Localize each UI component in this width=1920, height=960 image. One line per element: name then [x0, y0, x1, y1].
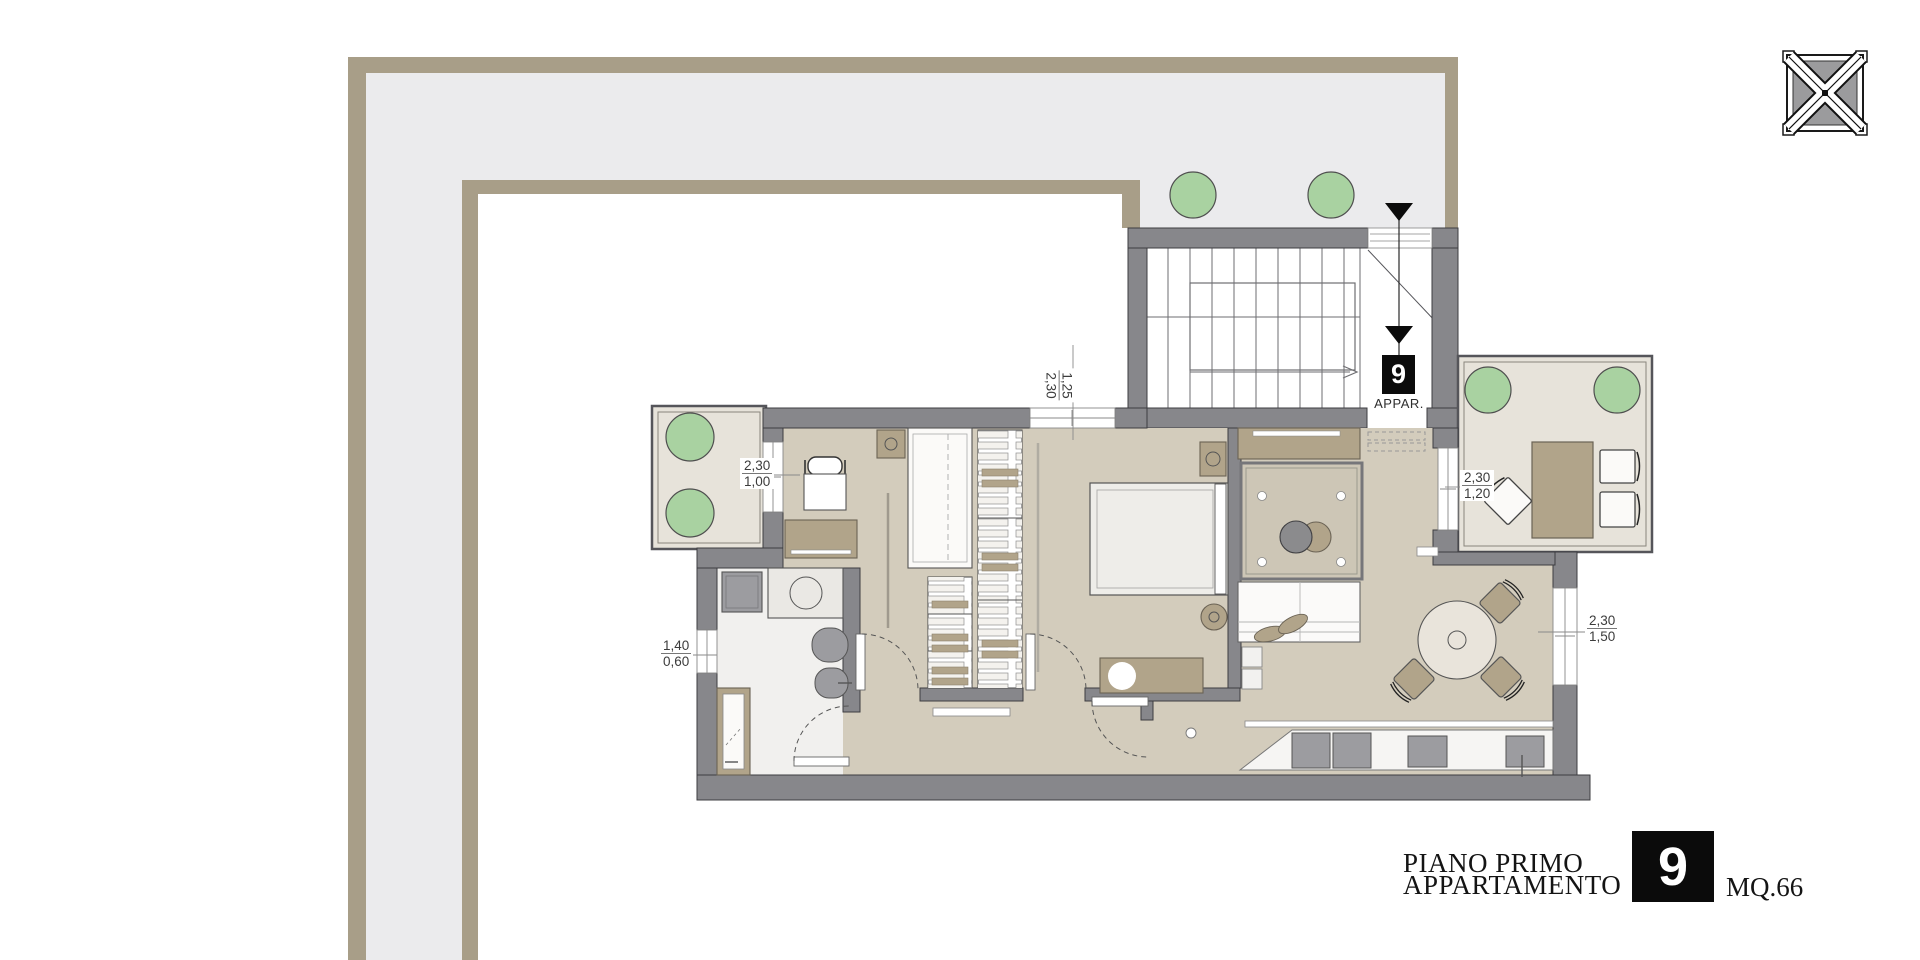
plant-circle-icon	[1308, 172, 1354, 218]
desk	[804, 474, 846, 510]
desk-chair	[805, 457, 845, 475]
dimension-label-balcony-window: 2,30 1,00	[740, 458, 774, 489]
toilet	[812, 628, 848, 662]
nightstand	[877, 430, 905, 458]
title-block: PIANO PRIMO APPARTAMENTO 9 MQ.66	[1395, 828, 1815, 918]
kitchen-appliance	[1333, 733, 1371, 768]
washing-machine	[722, 572, 762, 612]
dimension-label-bath-window: 1,40 0,60	[659, 638, 693, 669]
sink-counter	[768, 568, 843, 618]
stair-entrance-door	[1368, 228, 1432, 248]
floor-plan-page: 2,30 1,00 1,40 0,60 1,25 2,30 2,30 1,20 …	[0, 0, 1920, 960]
plant-circle-icon	[666, 413, 714, 461]
wall-vent	[1417, 547, 1438, 556]
living-window	[1553, 588, 1577, 685]
floor-plan-drawing	[0, 0, 1920, 960]
dimension-value-bottom: 1,20	[1462, 486, 1492, 501]
plant-circle-icon	[1170, 172, 1216, 218]
dimension-value-bottom: 1,00	[742, 474, 772, 489]
stair-unit-number-badge: 9	[1382, 355, 1415, 394]
dimension-value-top: 2,30	[1462, 470, 1492, 486]
dining-table	[1418, 601, 1496, 679]
stair-unit-caption: APPAR.	[1363, 396, 1435, 411]
dimension-value-bottom: 2,30	[1044, 370, 1059, 400]
terrace-chair	[1600, 492, 1640, 527]
floor-dot	[1186, 728, 1196, 738]
plant-circle-icon	[1465, 367, 1511, 413]
dimension-value-top: 2,30	[1587, 613, 1617, 629]
kitchen-sink	[1506, 736, 1544, 767]
dimension-value-top: 1,25	[1059, 370, 1075, 400]
double-bed	[1090, 483, 1228, 595]
bench	[1100, 658, 1203, 693]
terrace-window	[1438, 448, 1458, 530]
terrace-chair	[1600, 450, 1640, 483]
terrace-right	[1458, 356, 1652, 552]
dimension-value-bottom: 0,60	[661, 654, 691, 669]
hall-window	[1030, 408, 1115, 428]
hall-shelf	[933, 708, 1010, 716]
plant-circle-icon	[1594, 367, 1640, 413]
side-table	[1242, 647, 1262, 667]
terrace-table	[1532, 442, 1593, 538]
dimension-value-bottom: 1,50	[1587, 629, 1617, 644]
bedroom-partition-wall	[1228, 428, 1241, 688]
dimension-label-living-window: 2,30 1,50	[1585, 613, 1619, 644]
round-nightstand	[1201, 604, 1227, 630]
area-rug	[1241, 463, 1362, 579]
stairwell	[1115, 203, 1460, 448]
apartment-title: APPARTAMENTO	[1403, 874, 1621, 896]
sofa	[1238, 582, 1360, 645]
nightstand	[1200, 442, 1226, 476]
dimension-value-top: 1,40	[661, 638, 691, 654]
unit-number-badge: 9	[1632, 831, 1714, 902]
bath-window	[697, 630, 717, 673]
area-label: MQ.66	[1726, 872, 1803, 903]
side-table	[1242, 669, 1262, 689]
single-bed	[908, 428, 972, 568]
truss-logo	[1782, 50, 1872, 140]
sideboard	[1238, 428, 1360, 459]
dimension-value-top: 2,30	[742, 458, 772, 474]
plant-circle-icon	[666, 489, 714, 537]
dimension-label-hall-window: 1,25 2,30	[1044, 368, 1075, 402]
shower	[717, 688, 750, 775]
kitchen-appliance	[1408, 736, 1447, 767]
dimension-label-terrace-window: 2,30 1,20	[1460, 470, 1494, 501]
pouf	[1280, 521, 1312, 553]
kitchen-appliance	[1292, 733, 1330, 768]
